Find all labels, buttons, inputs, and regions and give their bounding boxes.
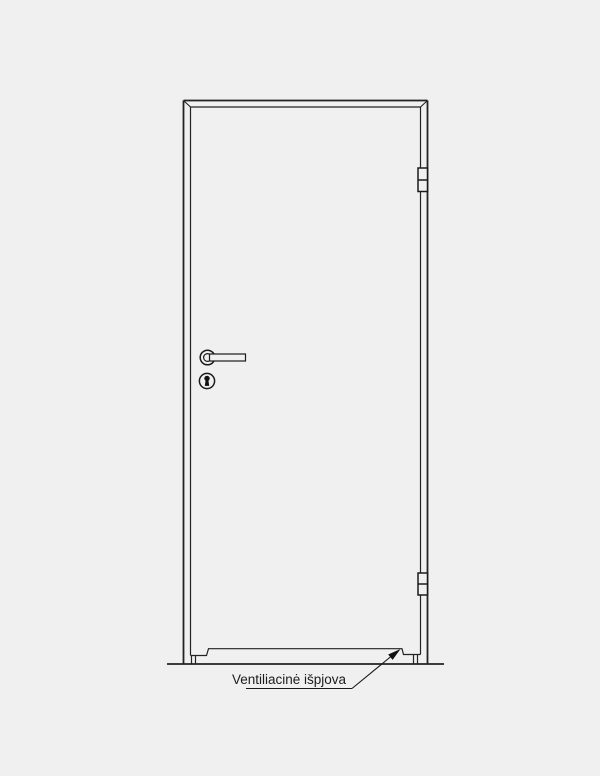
frame-miter-joints xyxy=(184,101,428,108)
ventilation-label: Ventiliacinė išpjova xyxy=(232,672,347,687)
door-leaf xyxy=(191,107,421,664)
keyhole xyxy=(199,373,214,388)
hinge-top xyxy=(418,168,428,192)
ventilation-cutout xyxy=(191,649,421,656)
hinge-bottom xyxy=(418,573,428,595)
door-diagram-canvas: Ventiliacinė išpjova xyxy=(0,0,600,776)
arrowhead xyxy=(388,649,400,660)
door-foot-left xyxy=(192,656,196,664)
door-elevation-diagram: Ventiliacinė išpjova xyxy=(0,0,600,776)
door-handle xyxy=(200,350,245,365)
door-frame xyxy=(184,101,428,664)
door-foot-right xyxy=(414,655,418,664)
handle-lever xyxy=(210,354,246,361)
